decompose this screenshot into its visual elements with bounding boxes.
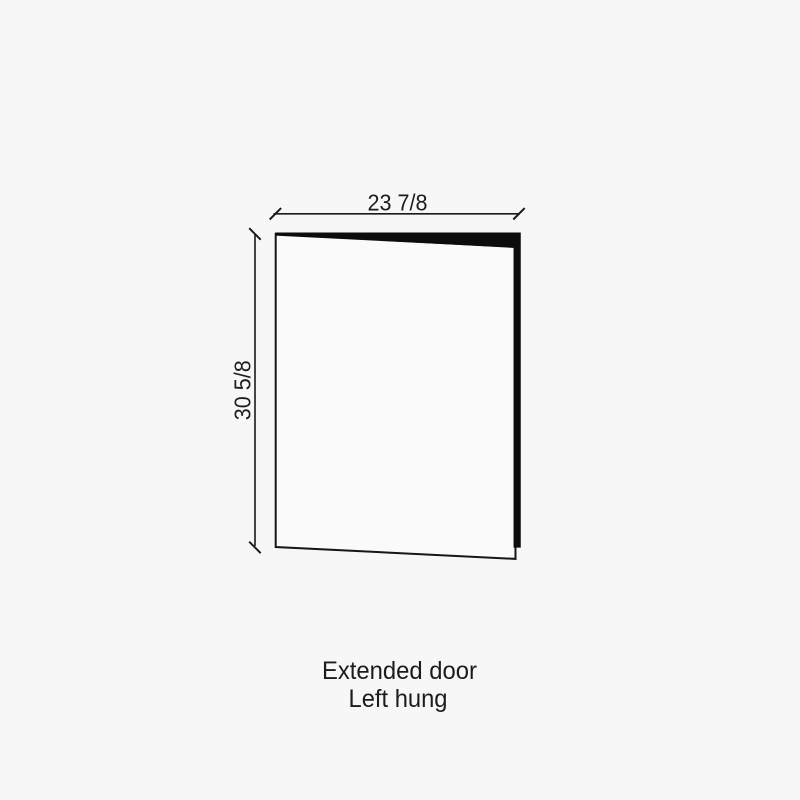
svg-text:Left hung: Left hung [349,685,448,713]
svg-text:30 5/8: 30 5/8 [230,360,256,420]
svg-text:23 7/8: 23 7/8 [368,189,428,215]
svg-text:Extended door: Extended door [322,657,477,685]
